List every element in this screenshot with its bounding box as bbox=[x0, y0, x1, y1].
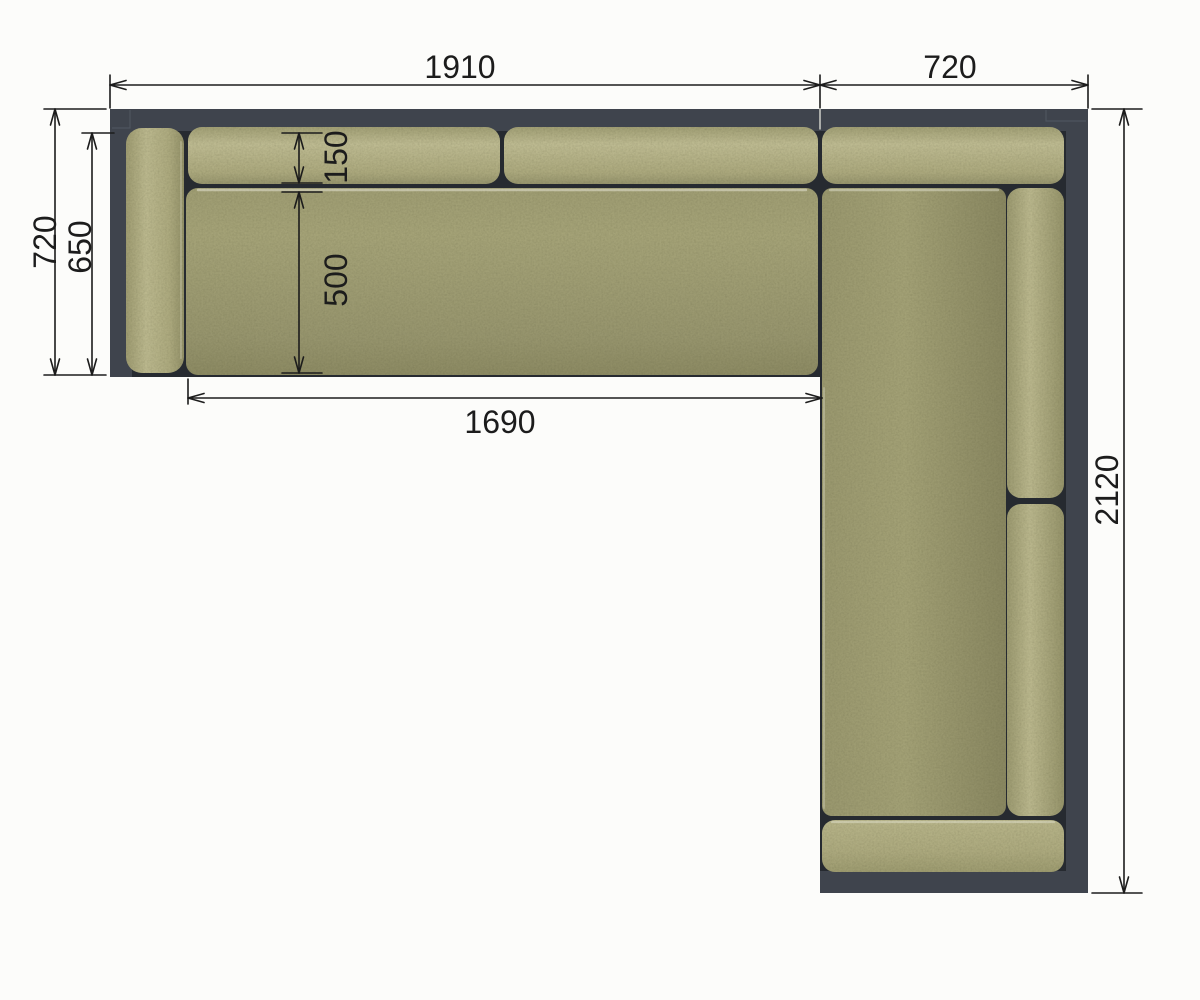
label-right-length: 2120 bbox=[1089, 454, 1125, 525]
label-left-depth: 720 bbox=[27, 215, 63, 268]
frame-bottom bbox=[820, 871, 1088, 893]
label-top-main: 1910 bbox=[424, 49, 495, 85]
label-back-depth: 150 bbox=[318, 130, 354, 183]
label-left-arm: 650 bbox=[62, 220, 98, 273]
frame-right bbox=[1066, 109, 1088, 893]
label-seat-width: 1690 bbox=[464, 404, 535, 440]
sofa-plan-drawing: 1910 720 720 650 150 500 1690 2120 bbox=[0, 0, 1200, 1000]
label-top-return: 720 bbox=[923, 49, 976, 85]
label-seat-depth: 500 bbox=[318, 253, 354, 306]
